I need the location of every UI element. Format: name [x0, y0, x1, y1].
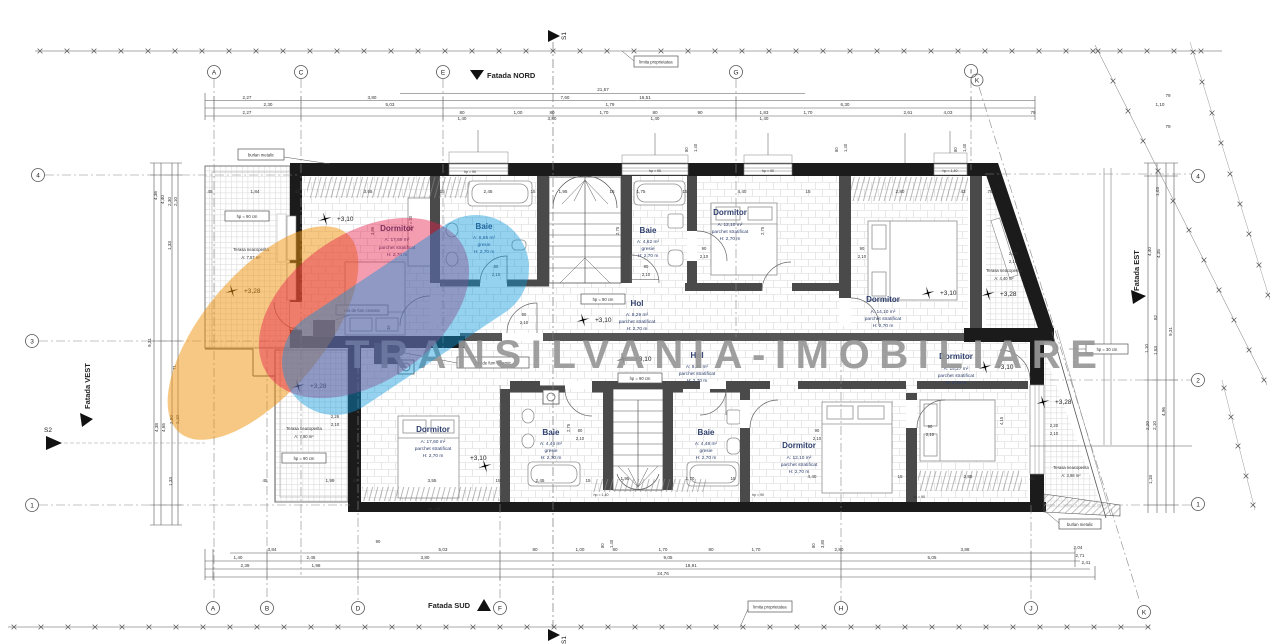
svg-text:2,10: 2,10 — [926, 432, 935, 437]
svg-text:80: 80 — [652, 110, 658, 115]
svg-text:K: K — [1142, 610, 1147, 617]
svg-text:2,10: 2,10 — [700, 254, 709, 259]
svg-text:3,80: 3,80 — [548, 116, 557, 121]
svg-text:2,27: 2,27 — [243, 110, 252, 115]
svg-text:43: 43 — [352, 478, 358, 483]
svg-text:Dormitor: Dormitor — [713, 208, 747, 217]
svg-text:9,05: 9,05 — [664, 555, 673, 560]
svg-text:H: 2,70 m: H: 2,70 m — [541, 455, 562, 461]
svg-text:4,03: 4,03 — [944, 110, 953, 115]
svg-text:5,05: 5,05 — [928, 555, 937, 560]
svg-text:15: 15 — [495, 478, 501, 483]
svg-text:2,45: 2,45 — [307, 555, 316, 560]
svg-text:Fatada EST: Fatada EST — [1132, 250, 1141, 291]
svg-text:Baie: Baie — [698, 428, 715, 437]
svg-text:43: 43 — [1029, 476, 1035, 481]
svg-text:2,10: 2,10 — [858, 254, 867, 259]
svg-text:parchet stratificat: parchet stratificat — [415, 446, 452, 452]
svg-text:A: 3,98 m²: A: 3,98 m² — [1061, 473, 1081, 478]
svg-text:S2: S2 — [44, 427, 52, 434]
svg-text:80: 80 — [811, 543, 816, 548]
svg-text:D: D — [356, 606, 361, 613]
svg-text:2,04: 2,04 — [1074, 545, 1083, 550]
svg-text:H: 2,70 m: H: 2,70 m — [946, 380, 967, 386]
svg-text:18,91: 18,91 — [685, 563, 697, 568]
svg-text:4,40: 4,40 — [808, 474, 817, 479]
svg-text:A: 17,60 m²: A: 17,60 m² — [421, 439, 446, 445]
svg-text:2,75: 2,75 — [615, 226, 620, 235]
svg-text:79: 79 — [987, 189, 993, 194]
svg-text:parchet stratificat: parchet stratificat — [712, 229, 749, 235]
svg-text:Fatada SUD: Fatada SUD — [428, 601, 471, 610]
svg-text:6,30: 6,30 — [841, 102, 850, 107]
svg-text:Dormitor: Dormitor — [416, 425, 450, 434]
svg-text:hp = 90 cm: hp = 90 cm — [237, 214, 258, 219]
svg-text:2,71: 2,71 — [1076, 553, 1085, 558]
svg-text:+3,28: +3,28 — [1000, 291, 1017, 298]
svg-text:80: 80 — [459, 110, 465, 115]
svg-text:hp = 1,40: hp = 1,40 — [593, 493, 608, 497]
svg-text:1,79: 1,79 — [606, 102, 615, 107]
svg-text:2,30: 2,30 — [167, 197, 172, 206]
svg-text:3,80: 3,80 — [368, 95, 377, 100]
svg-text:A: 4,40 m²: A: 4,40 m² — [994, 276, 1014, 281]
svg-text:2,10: 2,10 — [1009, 259, 1018, 264]
svg-text:1,40: 1,40 — [651, 116, 660, 121]
svg-text:hp = 90: hp = 90 — [913, 495, 925, 499]
svg-text:1,00: 1,00 — [514, 110, 523, 115]
svg-text:1,40: 1,40 — [760, 116, 769, 121]
svg-text:4,38: 4,38 — [154, 423, 159, 432]
svg-text:2,20: 2,20 — [1009, 251, 1018, 256]
svg-text:S1: S1 — [561, 32, 568, 40]
svg-text:A: A — [212, 70, 217, 77]
svg-text:H: 2,70 m: H: 2,70 m — [720, 236, 741, 242]
svg-text:burlan metalic: burlan metalic — [1067, 522, 1093, 527]
svg-text:3,55: 3,55 — [428, 478, 437, 483]
svg-text:parchet stratificat: parchet stratificat — [619, 319, 656, 325]
svg-text:90: 90 — [376, 539, 381, 544]
svg-text:2,30: 2,30 — [264, 102, 273, 107]
svg-text:24,76: 24,76 — [657, 571, 669, 576]
svg-text:5,03: 5,03 — [439, 547, 448, 552]
svg-text:80: 80 — [600, 543, 605, 548]
svg-text:79: 79 — [1165, 93, 1171, 98]
svg-text:90: 90 — [860, 246, 865, 251]
svg-text:3: 3 — [30, 339, 34, 346]
svg-text:hp = 90: hp = 90 — [428, 507, 440, 511]
svg-text:hp = 90: hp = 90 — [752, 493, 764, 497]
svg-text:Baie: Baie — [640, 226, 657, 235]
svg-text:15: 15 — [609, 189, 615, 194]
svg-text:15: 15 — [805, 189, 811, 194]
svg-text:2,75: 2,75 — [566, 423, 571, 432]
svg-text:2,39: 2,39 — [241, 563, 250, 568]
svg-text:43: 43 — [294, 189, 300, 194]
svg-text:1,70: 1,70 — [659, 547, 668, 552]
svg-text:4,35: 4,35 — [1156, 249, 1161, 258]
svg-text:80: 80 — [644, 264, 649, 269]
svg-text:2,10: 2,10 — [1050, 431, 1059, 436]
svg-text:+3,10: +3,10 — [595, 317, 612, 324]
svg-text:C: C — [299, 70, 304, 77]
svg-text:1,70: 1,70 — [804, 110, 813, 115]
svg-text:limita proprietatea: limita proprietatea — [753, 605, 787, 610]
svg-text:3,84: 3,84 — [268, 547, 277, 552]
svg-text:Terasa neacoperita: Terasa neacoperita — [286, 426, 322, 431]
svg-text:80: 80 — [953, 147, 958, 152]
svg-text:2,45: 2,45 — [484, 189, 493, 194]
svg-text:Terasa neacoperita: Terasa neacoperita — [986, 268, 1022, 273]
svg-text:burlan metalic: burlan metalic — [248, 153, 274, 158]
svg-text:90: 90 — [522, 312, 527, 317]
svg-text:1,70: 1,70 — [686, 476, 695, 481]
svg-text:1,40: 1,40 — [843, 143, 848, 152]
svg-text:H: 2,70 m: H: 2,70 m — [423, 453, 444, 459]
svg-text:Fatada VEST: Fatada VEST — [83, 363, 92, 409]
svg-text:1,95: 1,95 — [621, 476, 630, 481]
svg-text:1,98: 1,98 — [312, 563, 321, 568]
svg-text:80: 80 — [549, 110, 555, 115]
svg-text:4,36: 4,36 — [153, 191, 158, 200]
svg-text:21,57: 21,57 — [597, 87, 609, 92]
svg-text:1,53: 1,53 — [1153, 346, 1158, 355]
svg-text:80: 80 — [834, 147, 839, 152]
svg-text:A: 12,10 m²: A: 12,10 m² — [718, 222, 743, 228]
svg-text:4: 4 — [36, 173, 40, 180]
svg-text:1,00: 1,00 — [576, 547, 585, 552]
svg-text:E: E — [441, 70, 446, 77]
svg-text:9,31: 9,31 — [147, 338, 152, 347]
svg-text:hp = 90: hp = 90 — [762, 169, 774, 173]
svg-text:5,03: 5,03 — [386, 102, 395, 107]
svg-text:Terasa neacoperita: Terasa neacoperita — [1053, 465, 1089, 470]
svg-text:1,10: 1,10 — [1144, 344, 1149, 353]
svg-text:hp = 90: hp = 90 — [464, 170, 476, 174]
svg-text:1,40: 1,40 — [962, 143, 967, 152]
svg-text:45: 45 — [262, 478, 268, 483]
svg-text:9,31: 9,31 — [1168, 327, 1173, 336]
svg-text:90: 90 — [702, 246, 707, 251]
svg-text:7,60: 7,60 — [561, 95, 570, 100]
svg-text:45: 45 — [207, 189, 213, 194]
svg-text:4,40: 4,40 — [1147, 247, 1152, 256]
svg-text:H: 2,70 m: H: 2,70 m — [696, 455, 717, 461]
svg-text:G: G — [733, 70, 738, 77]
svg-text:Dormitor: Dormitor — [866, 295, 900, 304]
svg-text:K: K — [975, 78, 980, 85]
svg-text:gresie: gresie — [699, 448, 712, 454]
svg-text:15: 15 — [585, 478, 591, 483]
svg-text:15: 15 — [530, 189, 536, 194]
svg-text:79: 79 — [1165, 124, 1171, 129]
svg-text:H: 2,70 m: H: 2,70 m — [687, 378, 708, 384]
svg-text:4,65: 4,65 — [161, 423, 166, 432]
svg-text:hp = 1,40: hp = 1,40 — [942, 169, 957, 173]
svg-text:1,75: 1,75 — [637, 189, 646, 194]
svg-text:parchet stratificat: parchet stratificat — [781, 462, 818, 468]
svg-text:limita proprietatea: limita proprietatea — [639, 60, 673, 65]
svg-text:H: 2,70 m: H: 2,70 m — [789, 469, 810, 475]
svg-text:2,10: 2,10 — [576, 436, 585, 441]
svg-text:15: 15 — [897, 474, 903, 479]
svg-text:I: I — [970, 69, 972, 76]
svg-text:A: 4,48 m²: A: 4,48 m² — [695, 441, 718, 447]
svg-text:+3,10: +3,10 — [940, 290, 957, 297]
svg-text:Hol: Hol — [631, 299, 644, 308]
svg-text:2,80: 2,80 — [896, 189, 905, 194]
svg-text:80: 80 — [708, 547, 714, 552]
svg-text:15: 15 — [439, 189, 445, 194]
svg-text:1,70: 1,70 — [752, 547, 761, 552]
svg-text:2,10: 2,10 — [520, 320, 529, 325]
svg-text:Fatada NORD: Fatada NORD — [487, 71, 536, 80]
svg-text:A: 4,62 m²: A: 4,62 m² — [637, 239, 660, 245]
svg-text:90: 90 — [697, 110, 703, 115]
svg-text:H: H — [839, 606, 844, 613]
svg-text:80: 80 — [532, 547, 538, 552]
svg-text:80: 80 — [684, 147, 689, 152]
svg-text:3,88: 3,88 — [961, 547, 970, 552]
svg-text:B: B — [265, 606, 269, 613]
svg-text:1,33: 1,33 — [168, 477, 173, 486]
svg-text:gresie: gresie — [641, 246, 654, 252]
svg-text:1,95: 1,95 — [559, 189, 568, 194]
svg-text:A: 7,90 m²: A: 7,90 m² — [294, 434, 314, 439]
svg-text:2,20: 2,20 — [1050, 423, 1059, 428]
svg-text:1: 1 — [1196, 502, 1200, 509]
svg-text:82: 82 — [1153, 314, 1158, 320]
svg-text:A: 12,10 m²: A: 12,10 m² — [787, 455, 812, 461]
svg-text:80: 80 — [578, 428, 583, 433]
svg-text:2: 2 — [1196, 378, 1200, 385]
svg-text:1,03: 1,03 — [1155, 187, 1160, 196]
svg-text:F: F — [498, 606, 502, 613]
svg-text:parchet stratificat: parchet stratificat — [865, 316, 902, 322]
svg-text:2,75: 2,75 — [760, 226, 765, 235]
svg-text:A: 8,29 m²: A: 8,29 m² — [626, 312, 649, 318]
svg-text:1,99: 1,99 — [326, 478, 335, 483]
svg-text:4,96: 4,96 — [1161, 407, 1166, 416]
svg-text:4,15: 4,15 — [999, 416, 1004, 425]
svg-text:1,84: 1,84 — [251, 189, 260, 194]
svg-text:2,10: 2,10 — [173, 197, 178, 206]
svg-text:+3,28: +3,28 — [1055, 399, 1072, 406]
svg-text:1: 1 — [30, 503, 34, 510]
svg-text:2,10: 2,10 — [1152, 421, 1157, 430]
svg-text:2,45: 2,45 — [536, 478, 545, 483]
svg-text:1,33: 1,33 — [167, 241, 172, 250]
svg-text:2,10: 2,10 — [813, 436, 822, 441]
svg-text:+3,10: +3,10 — [470, 455, 487, 462]
svg-text:hp = 90: hp = 90 — [649, 169, 661, 173]
svg-text:2,10: 2,10 — [642, 272, 651, 277]
svg-text:H: 2,70 m: H: 2,70 m — [627, 326, 648, 332]
svg-text:1,10: 1,10 — [1156, 102, 1165, 107]
svg-text:A: 4,46 m²: A: 4,46 m² — [540, 441, 563, 447]
svg-text:4: 4 — [1196, 174, 1200, 181]
svg-text:4,40: 4,40 — [160, 195, 165, 204]
svg-text:1,70: 1,70 — [600, 110, 609, 115]
svg-text:2,27: 2,27 — [243, 95, 252, 100]
svg-text:1,83: 1,83 — [760, 110, 769, 115]
svg-text:J: J — [1029, 606, 1032, 613]
svg-text:1,40: 1,40 — [234, 555, 243, 560]
svg-text:1,40: 1,40 — [693, 143, 698, 152]
svg-text:Dormitor: Dormitor — [782, 441, 816, 450]
svg-text:Baie: Baie — [543, 428, 560, 437]
svg-text:43: 43 — [960, 189, 966, 194]
svg-text:4,40: 4,40 — [738, 189, 747, 194]
svg-text:hp = 90 cm: hp = 90 cm — [294, 456, 315, 461]
svg-text:gresie: gresie — [544, 448, 557, 454]
svg-text:S1: S1 — [561, 636, 568, 644]
svg-text:15: 15 — [730, 476, 736, 481]
svg-text:A: A — [211, 606, 216, 613]
svg-text:2,61: 2,61 — [904, 110, 913, 115]
svg-text:3,55: 3,55 — [364, 189, 373, 194]
svg-text:90: 90 — [928, 424, 933, 429]
svg-text:90: 90 — [815, 428, 820, 433]
svg-text:2,85: 2,85 — [964, 474, 973, 479]
svg-text:H: 2,70 m: H: 2,70 m — [638, 253, 659, 259]
svg-text:2,41: 2,41 — [1082, 560, 1091, 565]
svg-text:A: 14,10 m²: A: 14,10 m² — [871, 309, 896, 315]
svg-text:2,80: 2,80 — [835, 547, 844, 552]
svg-text:3,80: 3,80 — [820, 539, 825, 548]
svg-text:1,40: 1,40 — [458, 116, 467, 121]
svg-text:H: 2,70 m: H: 2,70 m — [873, 323, 894, 329]
svg-text:1,18: 1,18 — [1148, 475, 1153, 484]
svg-text:+3,10: +3,10 — [337, 216, 354, 223]
svg-text:2,20: 2,20 — [1145, 421, 1150, 430]
svg-text:15: 15 — [682, 189, 688, 194]
svg-text:16,51: 16,51 — [639, 95, 651, 100]
svg-text:3,80: 3,80 — [421, 555, 430, 560]
svg-text:79: 79 — [1030, 110, 1036, 115]
svg-text:1,40: 1,40 — [609, 539, 614, 548]
svg-text:hp = 90 cm: hp = 90 cm — [593, 297, 614, 302]
svg-text:2,10: 2,10 — [331, 422, 340, 427]
